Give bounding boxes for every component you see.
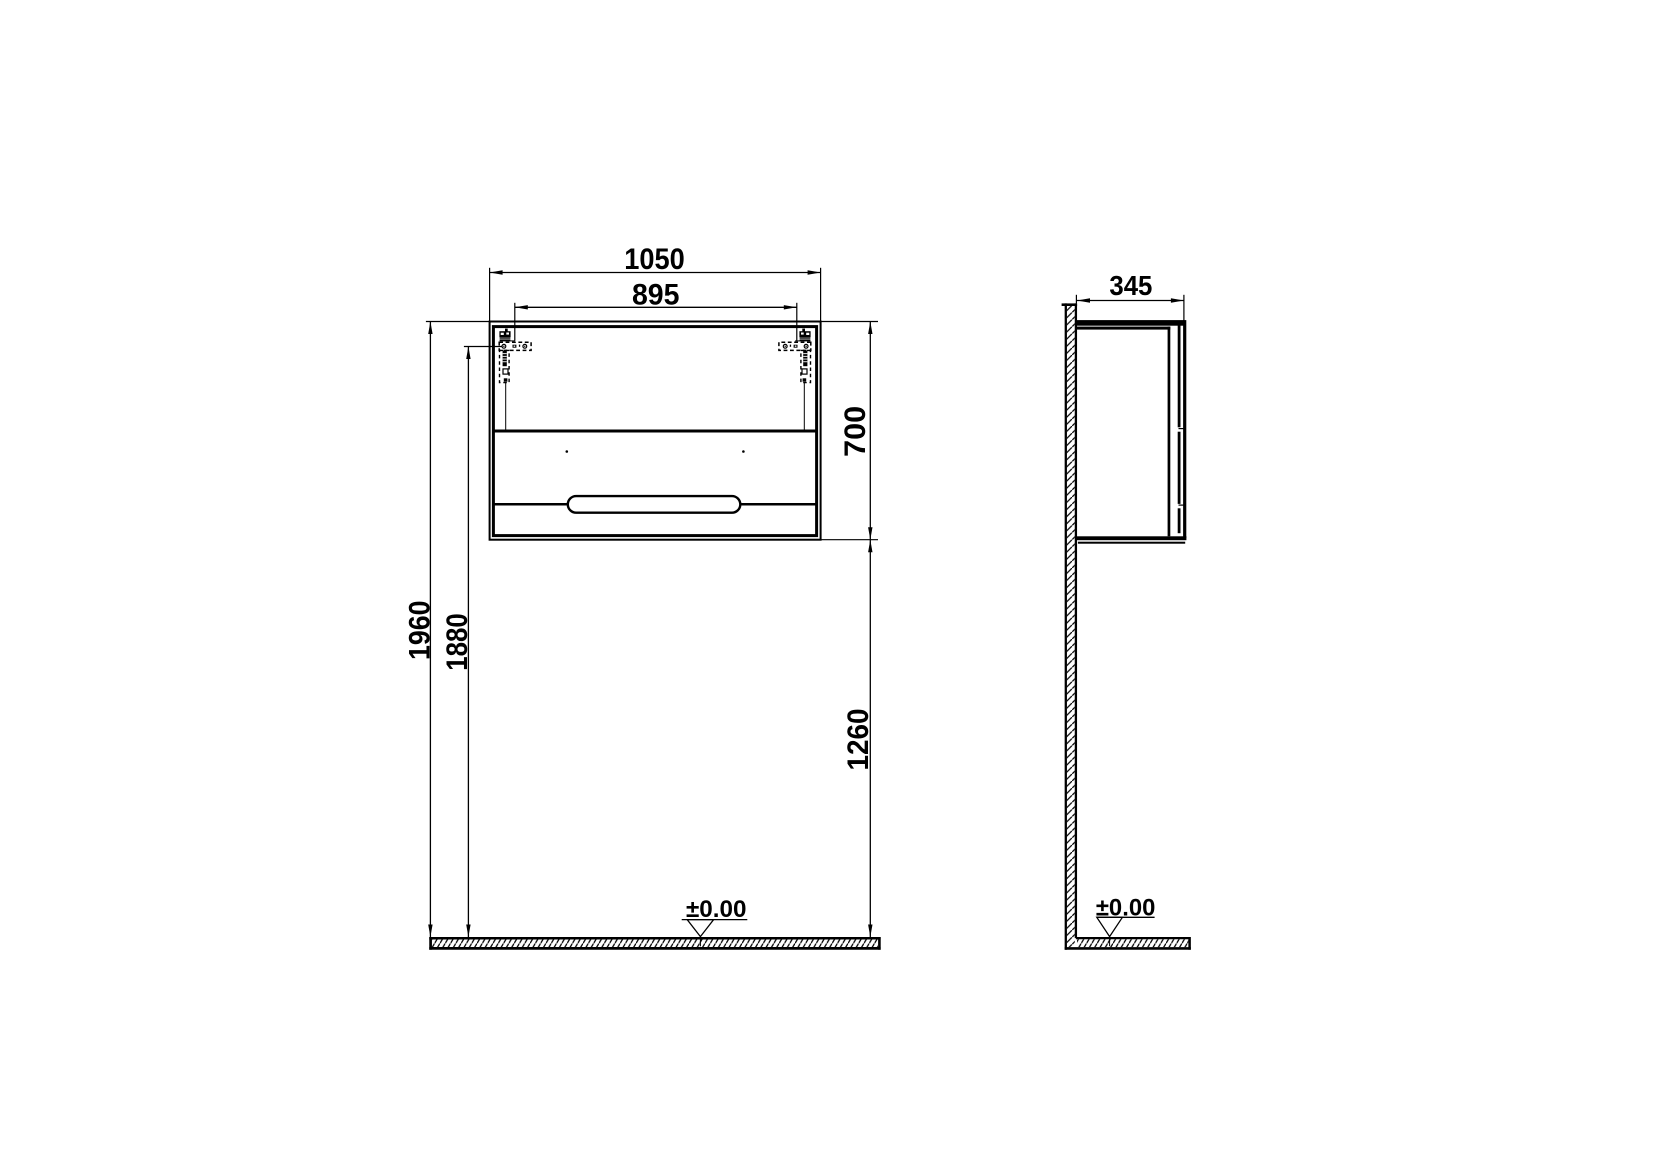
svg-text:1050: 1050 bbox=[624, 243, 685, 276]
svg-text:700: 700 bbox=[839, 406, 872, 457]
svg-text:895: 895 bbox=[632, 278, 680, 311]
svg-text:345: 345 bbox=[1109, 270, 1152, 301]
svg-text:1960: 1960 bbox=[404, 601, 437, 661]
svg-text:1260: 1260 bbox=[842, 709, 875, 771]
svg-text:1880: 1880 bbox=[441, 613, 474, 671]
